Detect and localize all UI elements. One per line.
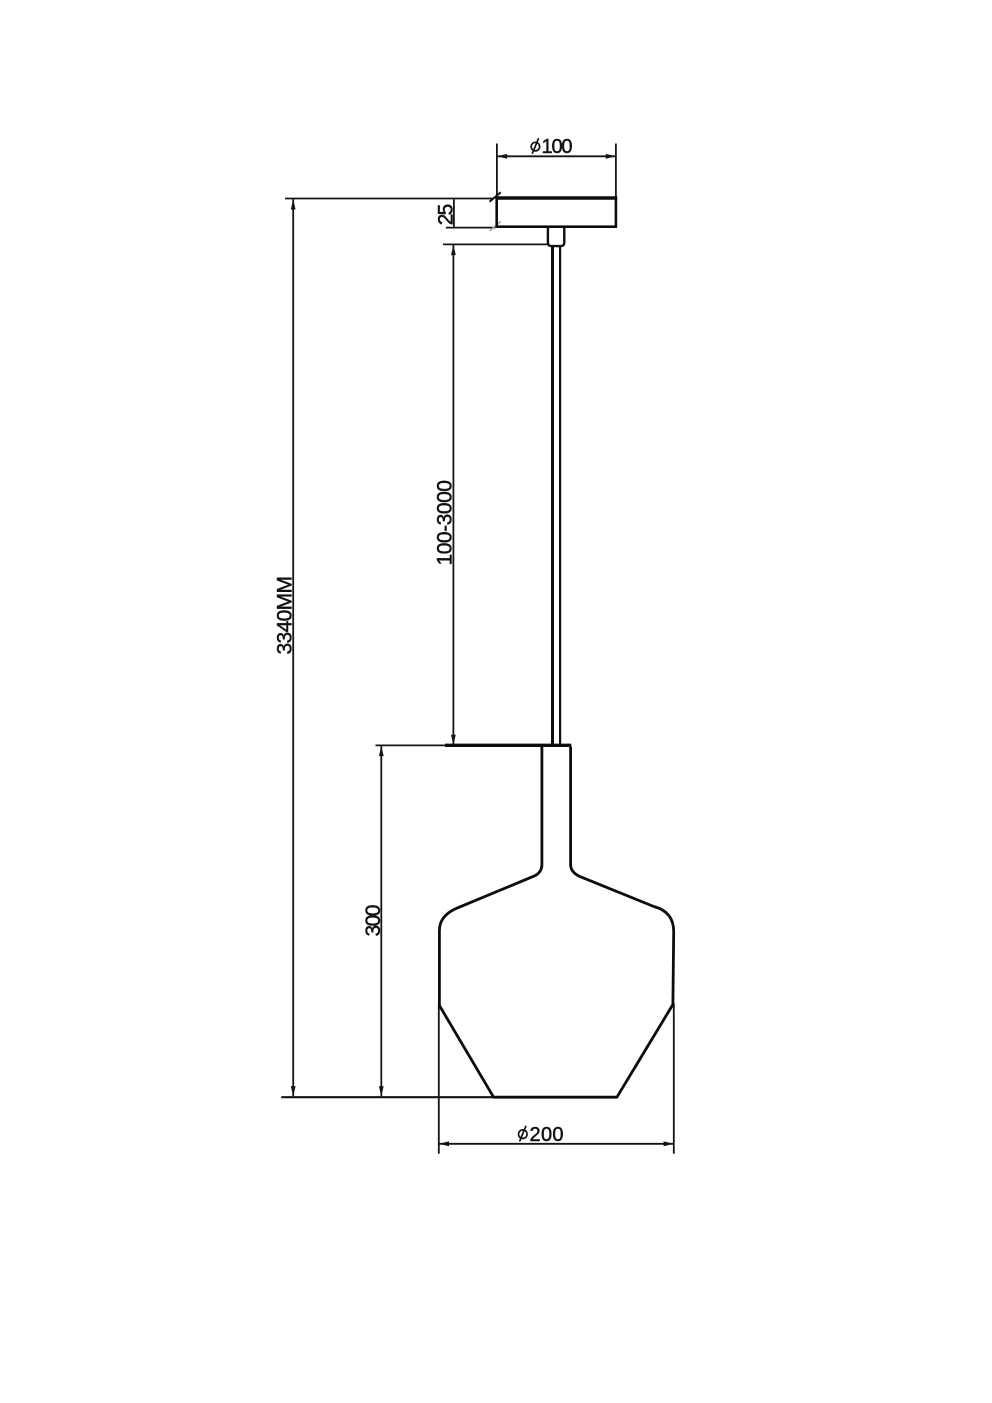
svg-text:3340MM: 3340MM [273, 576, 296, 655]
svg-text:100: 100 [542, 136, 573, 158]
svg-text:200: 200 [530, 1124, 564, 1146]
svg-text:100-3000: 100-3000 [433, 480, 456, 566]
svg-text:300: 300 [362, 905, 385, 937]
svg-text:25: 25 [435, 204, 458, 226]
